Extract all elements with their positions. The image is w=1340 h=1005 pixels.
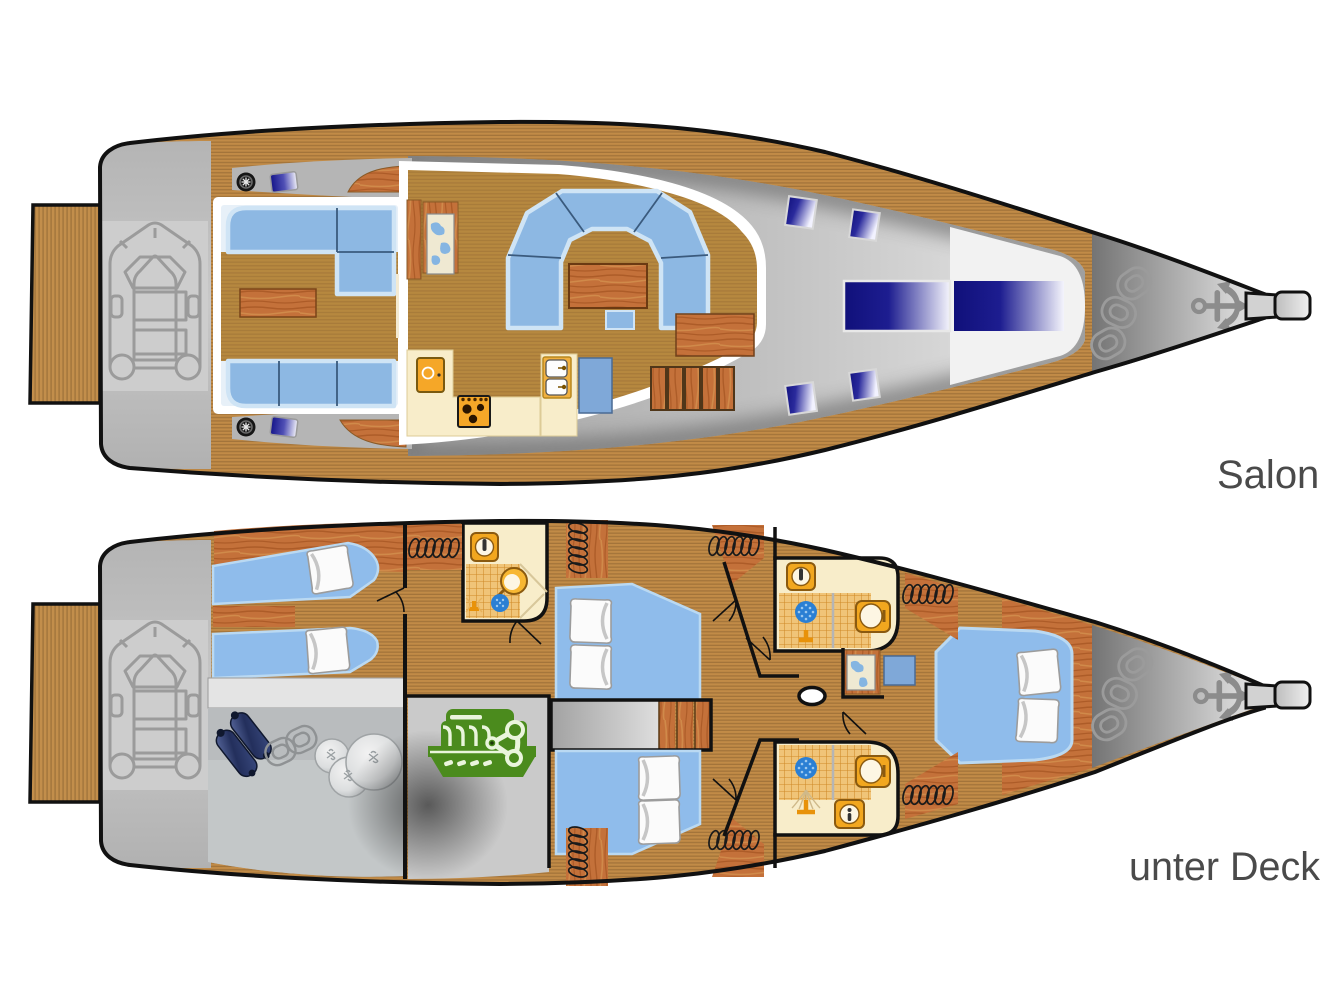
svg-text:Salon: Salon — [1217, 453, 1319, 497]
svg-text:unter Deck: unter Deck — [1129, 845, 1320, 889]
